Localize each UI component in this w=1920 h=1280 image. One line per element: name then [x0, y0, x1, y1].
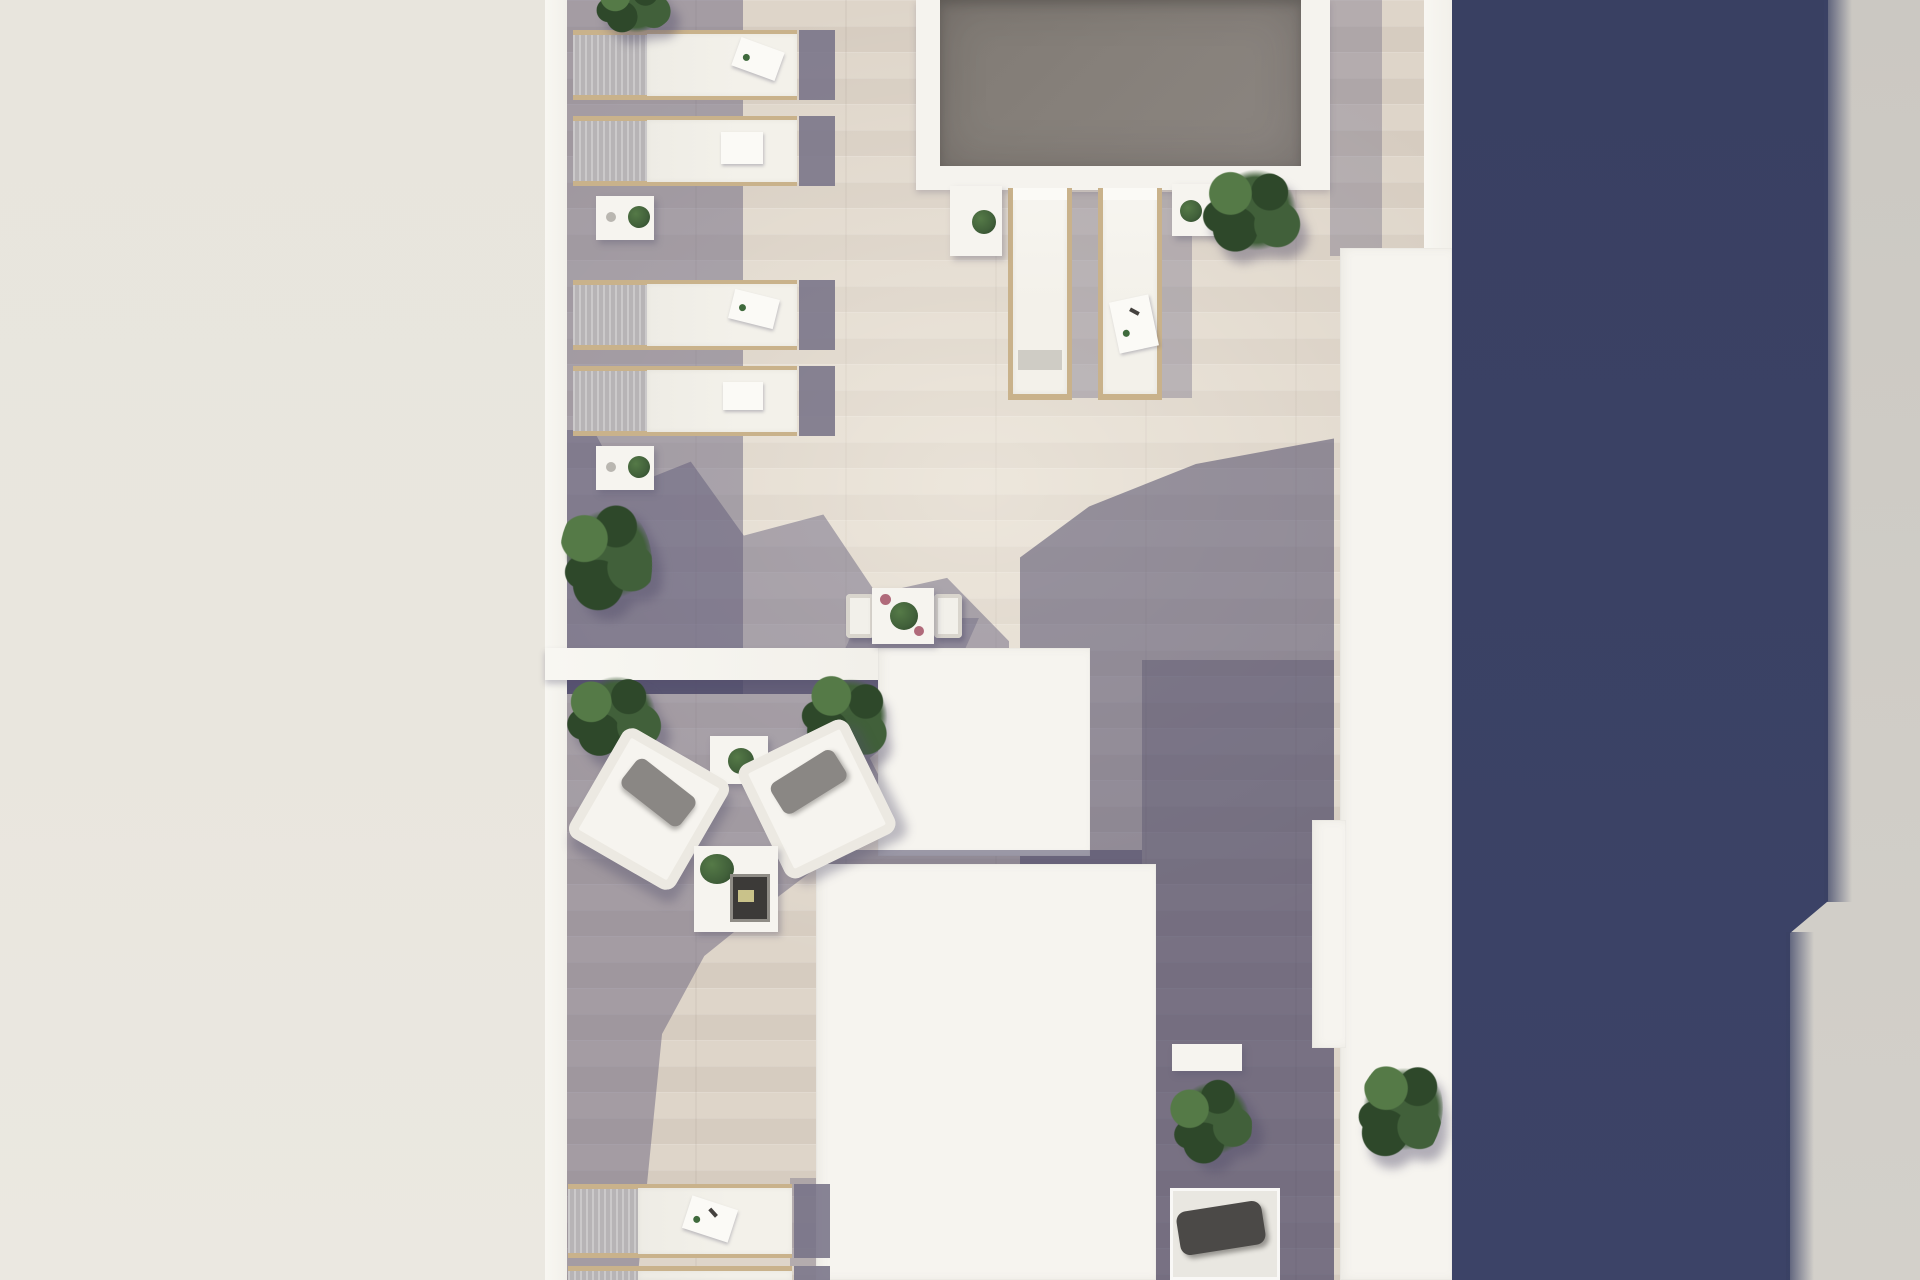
cup — [606, 462, 616, 472]
potted-plant — [972, 210, 996, 234]
folded-towel — [723, 382, 763, 410]
potted-plant — [628, 206, 650, 228]
sun-lounger-row-1 — [573, 30, 797, 100]
pool-water — [940, 0, 1301, 166]
lounger-frame — [1157, 188, 1162, 394]
lounger-mesh — [573, 121, 647, 181]
cast-shadow-pool-right — [1330, 0, 1382, 256]
parapet-wall-top-right — [1424, 0, 1452, 250]
bistro-chair-left — [846, 594, 874, 638]
lounger-frame — [1067, 188, 1072, 394]
neighbor-roof-left — [0, 0, 545, 1280]
poolside-lounger-1 — [1008, 188, 1072, 394]
lounger-cushion — [638, 1271, 792, 1280]
sun-lounger-row-2 — [573, 116, 797, 186]
lounger-mesh — [573, 285, 647, 345]
lounger-backrest-shadow — [794, 1266, 830, 1280]
rooftop-volume-right-extension — [1312, 820, 1346, 1048]
sun-lounger-row-4 — [573, 366, 797, 436]
potted-plant — [628, 456, 650, 478]
lounger-backrest-shadow — [799, 366, 835, 436]
poolside-lounger-2 — [1098, 188, 1162, 394]
gray-band — [1018, 350, 1062, 370]
daybed-pillow — [1175, 1200, 1267, 1257]
lounger-backrest-shadow — [799, 116, 835, 186]
folded-towel — [721, 132, 763, 164]
sun-lounger-row-3 — [573, 280, 797, 350]
potted-plant — [890, 602, 918, 630]
shadow-edge-fade-lower — [1786, 932, 1814, 1280]
rooftop-terrace-render — [0, 0, 1920, 1280]
coffee-table — [694, 846, 778, 932]
lounger-mesh — [568, 1189, 638, 1253]
seat-pillow — [768, 747, 850, 817]
lounger-headrest — [1013, 188, 1067, 200]
bottom-lounger-1 — [568, 1184, 792, 1258]
lounger-mesh — [573, 35, 647, 95]
lounger-backrest-shadow — [799, 30, 835, 100]
lounger-cushion — [1103, 188, 1157, 394]
bottom-lounger-2-partial — [568, 1266, 792, 1280]
shadow-edge-fade-upper — [1824, 0, 1852, 902]
lounger-foot-rail — [1008, 394, 1072, 400]
walkway-bench — [1172, 1044, 1242, 1071]
side-table-plant-1 — [596, 196, 654, 240]
parapet-wall-left — [545, 0, 567, 1280]
cast-shadow-lounger-gap-1 — [1072, 192, 1098, 398]
lounger-foot-rail — [1098, 394, 1162, 400]
seat-pillow — [618, 756, 698, 830]
lounger-backrest-shadow — [794, 1184, 830, 1258]
bistro-chair-right — [934, 594, 962, 638]
flower-pot — [914, 626, 924, 636]
lounger-headrest — [1103, 188, 1157, 200]
lounger-cushion — [647, 370, 797, 432]
lounger-backrest-shadow — [799, 280, 835, 350]
flower-pot — [880, 594, 891, 605]
decor-accent — [738, 890, 754, 902]
building-shadow-right — [1452, 0, 1828, 1280]
side-table-plant-2 — [596, 446, 654, 490]
cast-shadow-walkway-deepen — [1142, 660, 1334, 1280]
bistro-table — [872, 588, 934, 644]
rooftop-structure-b — [816, 864, 1156, 1280]
poolside-table-1 — [950, 186, 1002, 256]
potted-plant — [700, 854, 734, 884]
lounger-mesh — [573, 371, 647, 431]
lounger-mesh — [568, 1271, 638, 1280]
rooftop-structure-a — [878, 648, 1090, 856]
cup — [606, 212, 616, 222]
daybed — [1170, 1188, 1280, 1280]
